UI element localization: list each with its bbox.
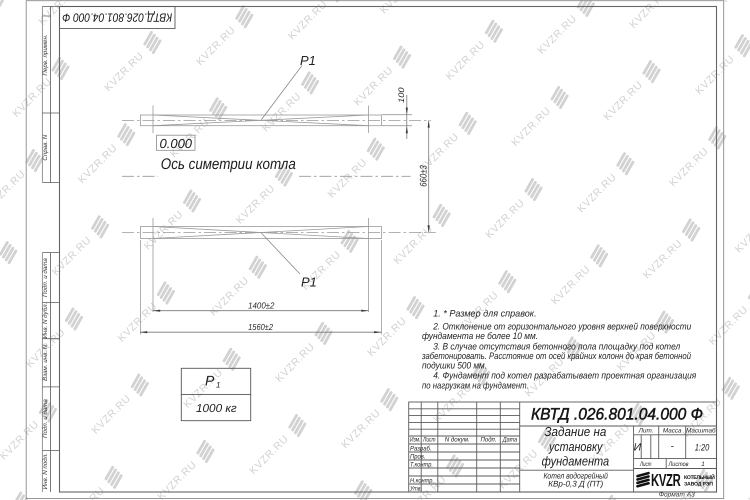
- svg-text:KVZR: KVZR: [651, 470, 681, 490]
- svg-text:Подп. и дата: Подп. и дата: [42, 258, 49, 297]
- svg-text:Р1: Р1: [301, 275, 317, 290]
- svg-text:Инв. N подл.: Инв. N подл.: [42, 453, 49, 489]
- svg-text:КВТД .026.801.04.000 Ф: КВТД .026.801.04.000 Ф: [531, 406, 703, 424]
- svg-text:Инв. N дубл.: Инв. N дубл.: [42, 303, 49, 339]
- svg-text:фундамента не более 10 мм.: фундамента не более 10 мм.: [422, 330, 538, 341]
- svg-text:Дата: Дата: [502, 437, 518, 444]
- svg-text:Масштаб: Масштаб: [686, 428, 716, 435]
- svg-text:Р: Р: [205, 373, 215, 389]
- svg-text:И: И: [634, 442, 642, 454]
- svg-text:1: 1: [701, 461, 705, 468]
- svg-text:1560±2: 1560±2: [248, 322, 273, 332]
- svg-text:Н.контр.: Н.контр.: [410, 477, 434, 484]
- svg-text:фундамента: фундамента: [542, 454, 610, 469]
- svg-text:Ось симетрии котла: Ось симетрии котла: [161, 156, 296, 173]
- svg-text:Пров.: Пров.: [410, 453, 426, 460]
- svg-text:660±3: 660±3: [418, 165, 429, 187]
- svg-text:Перв. примен.: Перв. примен.: [42, 34, 49, 75]
- svg-text:Листов: Листов: [668, 461, 689, 468]
- svg-text:Масса: Масса: [663, 428, 682, 435]
- svg-text:N докум.: N докум.: [445, 437, 470, 444]
- svg-text:Подп.: Подп.: [481, 437, 497, 444]
- svg-text:Утв.: Утв.: [409, 485, 422, 492]
- svg-text:установку: установку: [548, 439, 604, 454]
- svg-text:Т.контр.: Т.контр.: [410, 461, 433, 468]
- svg-text:по нагрузкам на фундамент.: по нагрузкам на фундамент.: [422, 379, 529, 390]
- svg-text:Формат А3: Формат А3: [659, 492, 695, 499]
- svg-text:1400±2: 1400±2: [248, 300, 274, 310]
- svg-text:1: 1: [216, 381, 220, 390]
- svg-text:КОТЕЛЬНЫЙ: КОТЕЛЬНЫЙ: [684, 474, 715, 481]
- svg-text:Лит.: Лит.: [638, 428, 654, 435]
- svg-text:Разраб.: Разраб.: [410, 445, 432, 452]
- svg-text:Задание на: Задание на: [544, 424, 606, 439]
- svg-text:Изм.: Изм.: [410, 437, 421, 444]
- svg-text:Р1: Р1: [300, 53, 316, 68]
- svg-text:100: 100: [397, 87, 406, 103]
- svg-text:Лист: Лист: [422, 437, 436, 444]
- svg-text:1. * Размер для справок.: 1. * Размер для справок.: [433, 308, 536, 319]
- svg-text:ЗАВОД РЭП: ЗАВОД РЭП: [684, 481, 713, 487]
- svg-text:Подп. и дата: Подп. и дата: [42, 399, 49, 438]
- svg-text:Лист: Лист: [639, 461, 651, 468]
- svg-text:КВТД.026.801.04.000 Ф: КВТД.026.801.04.000 Ф: [62, 11, 172, 25]
- svg-text:Справ. N: Справ. N: [42, 134, 49, 160]
- svg-text:1:20: 1:20: [695, 441, 710, 452]
- svg-text:0.000: 0.000: [160, 136, 193, 151]
- svg-text:КВр-0,3 Д (ПТ): КВр-0,3 Д (ПТ): [548, 479, 603, 488]
- svg-text:1000 кг: 1000 кг: [196, 403, 237, 415]
- svg-text:Взам. инв. N: Взам. инв. N: [42, 344, 49, 381]
